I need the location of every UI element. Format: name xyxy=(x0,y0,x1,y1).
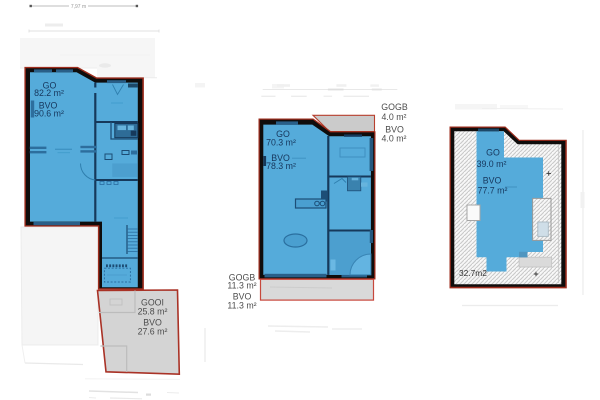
svg-text:11.3 m²: 11.3 m² xyxy=(227,281,256,291)
svg-text:25.8 m²: 25.8 m² xyxy=(138,306,168,316)
svg-text:7,97 m: 7,97 m xyxy=(71,4,86,10)
svg-text:82.2 m²: 82.2 m² xyxy=(34,88,64,98)
svg-text:32.7m2: 32.7m2 xyxy=(459,268,487,278)
svg-text:GO: GO xyxy=(486,148,500,158)
svg-text:70.3 m²: 70.3 m² xyxy=(266,137,296,147)
svg-text:4.0 m²: 4.0 m² xyxy=(382,112,407,122)
svg-text:78.3 m²: 78.3 m² xyxy=(266,161,296,171)
svg-text:11.3 m²: 11.3 m² xyxy=(227,301,256,311)
svg-text:90.6 m²: 90.6 m² xyxy=(34,108,64,118)
svg-text:BVO: BVO xyxy=(483,176,502,186)
svg-text:4.0 m²: 4.0 m² xyxy=(382,133,407,143)
svg-text:39.0 m²: 39.0 m² xyxy=(477,159,507,169)
svg-text:GOGB: GOGB xyxy=(381,102,408,112)
svg-text:77.7 m²: 77.7 m² xyxy=(478,186,508,196)
svg-text:27.6 m²: 27.6 m² xyxy=(138,326,168,336)
